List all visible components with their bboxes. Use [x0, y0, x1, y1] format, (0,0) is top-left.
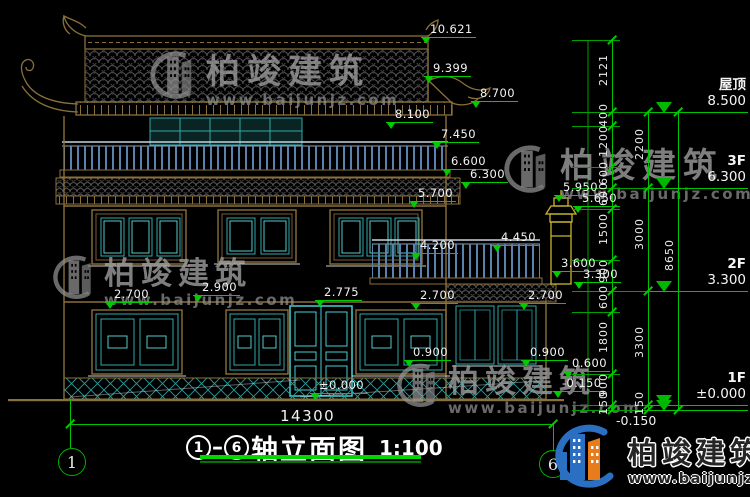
cad-elevation-screenshot: 柏竣建筑 www.baijunjz.com 柏竣建筑 www.baijunjz.… — [0, 0, 750, 497]
floor-name: 屋顶 — [650, 78, 746, 94]
floor-label: 1F±0.000 — [650, 371, 746, 402]
elevation-value: 4.200 — [411, 239, 458, 254]
elevation-value: 2.900 — [193, 281, 240, 296]
floor-label: 屋顶8.500 — [650, 78, 746, 109]
dimension-chain-line — [612, 40, 613, 410]
dimension-value: 1800 — [597, 321, 610, 353]
window — [88, 310, 186, 376]
elevation-value: 2.700 — [411, 289, 458, 304]
elevation-value: 8.700 — [471, 87, 518, 102]
elevation-marker: 5.700 — [409, 187, 456, 202]
elevation-marker: 4.450 — [492, 231, 539, 246]
elevation-marker: 0.600 — [563, 357, 610, 372]
brand-url: www.baijunjz.com — [628, 471, 750, 487]
dimension-value: 3000 — [633, 218, 646, 250]
elevation-marker: 8.700 — [471, 87, 518, 102]
mid-eave — [56, 178, 460, 204]
elevation-marker: 6.300 — [461, 168, 508, 183]
base-plinth — [8, 378, 564, 401]
elevation-marker: 2.700 — [519, 289, 566, 304]
window — [352, 310, 450, 376]
brand-logo-icon — [540, 422, 622, 494]
elevation-value: 6.300 — [461, 168, 508, 183]
elevation-value: 0.900 — [521, 346, 568, 361]
ground-line — [8, 399, 564, 401]
floor-label: 3F6.300 — [650, 154, 746, 185]
elevation-marker: 2.700 — [105, 288, 152, 303]
elevation-value: 0.900 — [404, 346, 451, 361]
window — [214, 210, 300, 264]
floor-elevation: 6.300 — [650, 170, 746, 186]
window — [456, 306, 494, 364]
dimension-value: 1500 — [597, 213, 610, 245]
dimension-value: 150 — [597, 391, 610, 415]
title-underline-2 — [200, 461, 421, 463]
floor-elevation: ±0.000 — [650, 387, 746, 403]
dimension-value: 600 — [597, 285, 610, 309]
dimension-value: 900 — [597, 259, 610, 283]
axis-number: 1 — [67, 453, 77, 472]
axis-bubble-1: 1 — [58, 448, 86, 476]
dimension-extension-line — [572, 291, 656, 292]
dimension-value: 1200 — [597, 125, 610, 157]
overall-dimension-value: 14300 — [280, 407, 335, 425]
brand-name: 柏竣建筑 — [628, 430, 750, 472]
elevation-value: 8.100 — [386, 108, 433, 123]
elevation-value: 2.700 — [519, 289, 566, 304]
floor-name: 3F — [650, 154, 746, 170]
dimension-extension-line — [572, 126, 620, 127]
dimension-extension-line — [572, 312, 620, 313]
dimension-value: 600 — [597, 182, 610, 206]
elevation-value: 4.450 — [492, 231, 539, 246]
elevation-value: 9.399 — [424, 62, 471, 77]
floor-name: 1F — [650, 371, 746, 387]
dimension-value: 3300 — [633, 326, 646, 358]
title-underline — [200, 455, 421, 459]
elevation-marker: 2.900 — [193, 281, 240, 296]
dimension-value: 8650 — [663, 239, 676, 271]
dimension-value: 2121 — [597, 54, 610, 86]
dimension-value: 400 — [597, 103, 610, 127]
elevation-marker: 0.900 — [404, 346, 451, 361]
elevation-value: 10.621 — [421, 23, 476, 38]
window — [88, 210, 190, 266]
dimension-value: 2200 — [633, 128, 646, 160]
left-eave-curl — [21, 60, 78, 104]
elevation-value: 2.775 — [315, 286, 362, 301]
floor-elevation: 3.300 — [650, 273, 746, 289]
elevation-marker: ±0.000 — [310, 379, 367, 394]
elevation-marker: 0.900 — [521, 346, 568, 361]
dimension-extension-line — [572, 374, 620, 375]
elevation-marker: 2.700 — [411, 289, 458, 304]
elevation-marker: 4.200 — [411, 239, 458, 254]
elevation-marker: 9.399 — [424, 62, 471, 77]
window — [226, 310, 288, 374]
elevation-marker: 8.100 — [386, 108, 433, 123]
elevation-value: 0.600 — [563, 357, 610, 372]
elevation-marker: 7.450 — [432, 128, 479, 143]
dimension-extension-line — [572, 40, 620, 41]
floor-elevation: 8.500 — [650, 94, 746, 110]
elevation-value: 2.700 — [105, 288, 152, 303]
elevation-marker: 10.621 — [421, 23, 476, 38]
elevation-value: 7.450 — [432, 128, 479, 143]
level-triangle-marker — [656, 400, 672, 419]
elevation-value: 5.700 — [409, 187, 456, 202]
main-roof — [21, 16, 490, 115]
dimension-extension-line — [572, 167, 620, 168]
elevation-marker: 2.775 — [315, 286, 362, 301]
balcony-railing — [64, 146, 446, 170]
brand-logo: 柏竣建筑 www.baijunjz.com — [540, 422, 750, 494]
elevation-value: ±0.000 — [310, 379, 367, 394]
dimension-value: 150 — [633, 391, 646, 415]
